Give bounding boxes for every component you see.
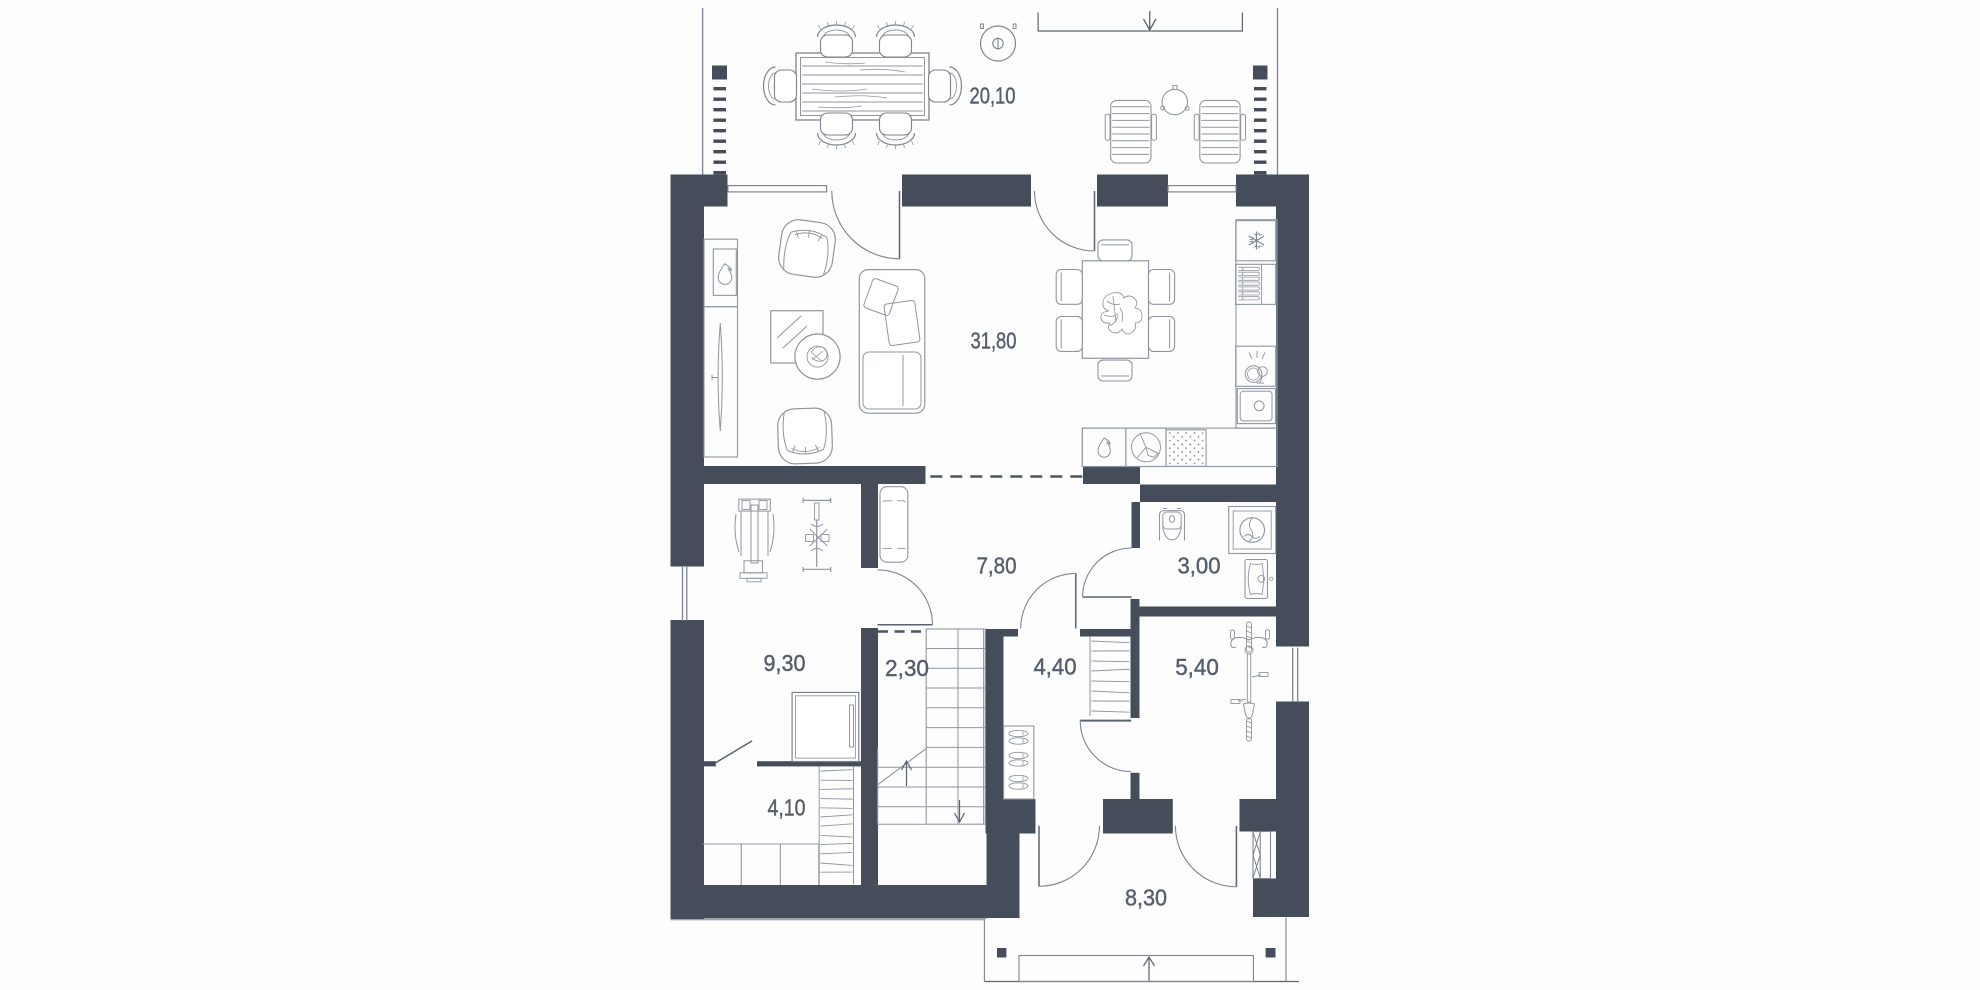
svg-text:2,30: 2,30 bbox=[885, 655, 929, 681]
svg-text:4,10: 4,10 bbox=[768, 795, 806, 821]
svg-text:7,80: 7,80 bbox=[977, 553, 1017, 579]
svg-text:4,40: 4,40 bbox=[1034, 654, 1077, 680]
svg-text:20,10: 20,10 bbox=[970, 83, 1016, 109]
svg-text:31,80: 31,80 bbox=[971, 328, 1017, 354]
svg-text:9,30: 9,30 bbox=[764, 650, 806, 676]
svg-text:8,30: 8,30 bbox=[1125, 885, 1167, 911]
svg-text:3,00: 3,00 bbox=[1178, 553, 1221, 579]
svg-text:5,40: 5,40 bbox=[1175, 654, 1219, 680]
